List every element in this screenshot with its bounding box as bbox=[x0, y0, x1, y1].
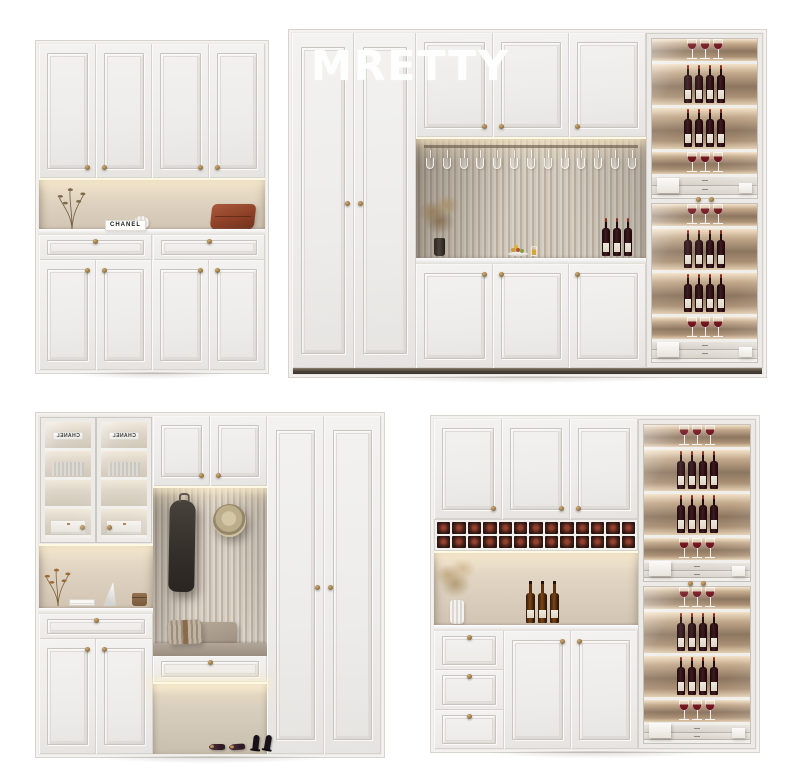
wine-rack-cell bbox=[499, 536, 512, 548]
wine-rack-cell bbox=[468, 536, 481, 548]
countertop bbox=[39, 608, 153, 614]
bench-drawer-row bbox=[153, 656, 267, 682]
glass-door-knob bbox=[696, 197, 701, 202]
wine-bottle-icon bbox=[710, 505, 718, 533]
drawer-front bbox=[434, 670, 504, 709]
wine-glass-icon bbox=[705, 538, 715, 558]
wine-bottle-icon bbox=[706, 75, 714, 103]
plate-decor bbox=[508, 252, 528, 256]
bottles-shelf bbox=[644, 450, 750, 494]
wine-rack-cell bbox=[437, 522, 450, 534]
glass-door-display-column bbox=[651, 38, 758, 199]
door-knob bbox=[499, 124, 504, 129]
tall-doors bbox=[267, 416, 381, 754]
wine-glass-icon bbox=[679, 587, 689, 607]
wine-bottle-icon bbox=[688, 461, 696, 489]
hanging-wine-glass-icon bbox=[594, 150, 602, 169]
wine-rack-cell bbox=[499, 522, 512, 534]
display-shelf: CHANEL bbox=[45, 422, 91, 451]
bench-pillow-decor bbox=[199, 622, 237, 644]
door-panel-molding bbox=[47, 648, 88, 745]
wine-bottle-icon bbox=[710, 461, 718, 489]
display-niche: CHANEL bbox=[39, 178, 265, 235]
countertop bbox=[434, 625, 638, 631]
upper-doors-row bbox=[39, 44, 265, 178]
glass-door-knob bbox=[688, 581, 693, 586]
panel-wine-bar-cabinet bbox=[430, 415, 760, 753]
door-knob bbox=[482, 124, 487, 129]
wine-glass-icon bbox=[713, 152, 723, 172]
wine-rack-cell bbox=[452, 536, 465, 548]
door-panel-molding bbox=[363, 47, 407, 354]
glasses-shelf bbox=[644, 538, 750, 563]
glass-door-knob bbox=[709, 197, 714, 202]
display-shelf bbox=[101, 480, 147, 509]
door-knob bbox=[85, 165, 90, 170]
wine-glass-icon bbox=[679, 700, 689, 720]
cabinet-door bbox=[152, 260, 209, 370]
wine-bottle-icon bbox=[695, 75, 703, 103]
door-knob bbox=[491, 506, 496, 511]
floor-shadow bbox=[439, 751, 751, 761]
glasses-shelf bbox=[644, 700, 750, 725]
wine-glass-icon bbox=[713, 204, 723, 224]
bottles-shelf bbox=[652, 273, 757, 317]
display-shelf bbox=[101, 451, 147, 480]
storage-box-decor bbox=[732, 566, 745, 576]
wine-bottle-icon bbox=[684, 240, 692, 268]
door-panel-molding bbox=[160, 269, 201, 361]
door-panel-molding bbox=[301, 47, 345, 354]
hanging-wine-glass-icon bbox=[510, 150, 518, 169]
wine-rack-cell bbox=[514, 522, 527, 534]
bench-pillow-decor bbox=[168, 619, 203, 644]
door-panel-molding bbox=[276, 430, 315, 740]
wine-rack-grid bbox=[434, 519, 638, 551]
storage-box-decor bbox=[649, 561, 671, 576]
door-panel-molding bbox=[104, 53, 145, 169]
coat-hall-niche bbox=[153, 486, 267, 656]
wine-glass-icon bbox=[705, 587, 715, 607]
cabinet-door bbox=[39, 639, 96, 754]
led-light-strip bbox=[434, 551, 638, 553]
wine-rack-cell bbox=[514, 536, 527, 548]
cabinet-door bbox=[209, 44, 266, 178]
drawers-row bbox=[39, 235, 265, 260]
drawer-front bbox=[153, 656, 267, 682]
hanging-wine-glass-icon bbox=[460, 150, 468, 169]
wine-rack-cell bbox=[529, 522, 542, 534]
door-knob bbox=[198, 165, 203, 170]
door-knob bbox=[575, 124, 580, 129]
wine-glass-icon bbox=[700, 152, 710, 172]
glasses-shelf bbox=[644, 587, 750, 612]
door-knob bbox=[345, 201, 350, 206]
door-knob bbox=[560, 639, 565, 644]
door-panel-molding bbox=[217, 269, 258, 361]
counter-wine-bottles bbox=[526, 581, 559, 623]
books-decor bbox=[69, 599, 95, 606]
hanging-wine-glass-icon bbox=[544, 150, 552, 169]
door-knob bbox=[559, 506, 564, 511]
wine-rack-cell bbox=[452, 522, 465, 534]
wine-glass-icon bbox=[692, 587, 702, 607]
hanging-wine-glass-icon bbox=[561, 150, 569, 169]
door-panel-molding bbox=[47, 53, 88, 169]
drawer-molding bbox=[442, 675, 496, 704]
wine-rack-cell bbox=[545, 522, 558, 534]
cabinet-door bbox=[267, 416, 324, 754]
stemware-rack bbox=[424, 145, 638, 171]
wine-glass-icon bbox=[679, 425, 689, 445]
wine-glass-icon bbox=[687, 204, 697, 224]
wine-bottle-icon bbox=[706, 240, 714, 268]
wine-glass-icon bbox=[713, 317, 723, 337]
cabinet-door bbox=[209, 260, 266, 370]
cabinet-door bbox=[502, 419, 570, 519]
wine-rack-cell bbox=[622, 522, 635, 534]
cabinet-door bbox=[569, 33, 646, 137]
glasses-shelf bbox=[652, 39, 757, 64]
wine-bottle-icon bbox=[717, 240, 725, 268]
led-light-strip bbox=[39, 178, 265, 180]
wine-bottle-icon bbox=[602, 228, 610, 256]
hanging-wine-glass-icon bbox=[443, 150, 451, 169]
door-knob bbox=[216, 473, 221, 478]
wine-bottle-icon bbox=[526, 593, 535, 623]
wine-rack-cell bbox=[545, 536, 558, 548]
countertop bbox=[416, 258, 646, 264]
cabinet-plinth bbox=[293, 368, 762, 374]
dried-plant-decor bbox=[53, 183, 91, 229]
storage-box-decor bbox=[649, 723, 671, 738]
wine-bottle-icon bbox=[717, 119, 725, 147]
wine-bottle-icon bbox=[624, 228, 632, 256]
straw-hat-decor bbox=[213, 504, 246, 537]
wine-glass-icon bbox=[700, 204, 710, 224]
drawer-front bbox=[434, 710, 504, 749]
wine-bottle-icon bbox=[706, 284, 714, 312]
wine-glass-icon bbox=[692, 425, 702, 445]
lower-doors-row bbox=[504, 631, 638, 749]
wine-bottle-icon bbox=[684, 284, 692, 312]
drawer-molding bbox=[442, 636, 496, 665]
door-knob bbox=[102, 268, 107, 273]
storage-box-decor bbox=[657, 178, 679, 193]
cabinet-door bbox=[96, 639, 153, 754]
cabinet-door bbox=[434, 419, 502, 519]
ribbed-vase-decor bbox=[450, 600, 464, 624]
glass-door-display-column bbox=[643, 586, 751, 744]
wine-rack-cell bbox=[483, 536, 496, 548]
cabinet-door bbox=[571, 631, 638, 749]
display-shelf bbox=[45, 509, 91, 538]
drawer-front bbox=[153, 235, 266, 260]
wine-bottle-icon bbox=[699, 505, 707, 533]
wine-bottle-icon bbox=[695, 240, 703, 268]
wine-bottle-icon bbox=[688, 667, 696, 695]
floor-shadow bbox=[44, 756, 376, 766]
storage-box-decor bbox=[657, 342, 679, 357]
led-light-strip bbox=[39, 544, 153, 546]
led-light-strip bbox=[416, 137, 646, 139]
wine-bottle-icon bbox=[677, 667, 685, 695]
cabinet-door bbox=[153, 416, 210, 486]
door-knob bbox=[482, 272, 487, 277]
hanging-wine-glass-icon bbox=[476, 150, 484, 169]
wine-glass-icon bbox=[687, 39, 697, 59]
glasses-shelf bbox=[652, 152, 757, 177]
door-panel-molding bbox=[218, 425, 259, 477]
drawer-stack bbox=[434, 631, 504, 749]
door-panel-molding bbox=[104, 648, 145, 745]
door-panel-molding bbox=[442, 428, 494, 510]
door-panel-molding bbox=[104, 269, 145, 361]
wine-rack-cell bbox=[437, 536, 450, 548]
wine-glass-icon bbox=[700, 39, 710, 59]
wine-glass-icon bbox=[705, 425, 715, 445]
wine-bottle-icon bbox=[684, 119, 692, 147]
door-panel-molding bbox=[510, 428, 562, 510]
door-knob bbox=[215, 268, 220, 273]
storage-box-decor bbox=[52, 462, 84, 476]
chanel-box-decor: CHANEL bbox=[53, 432, 84, 441]
wine-glass-icon bbox=[700, 317, 710, 337]
lower-doors-row bbox=[39, 639, 153, 754]
cabinet-door bbox=[504, 631, 571, 749]
wine-bottle-icon bbox=[688, 623, 696, 651]
storage-box-decor bbox=[739, 183, 752, 193]
drawer-knob bbox=[467, 635, 472, 640]
wine-bottle-icon bbox=[695, 119, 703, 147]
chanel-sign: CHANEL bbox=[105, 220, 146, 231]
display-shelf bbox=[101, 509, 147, 538]
product-image-collage: CHANEL bbox=[0, 0, 800, 778]
drawer-front bbox=[39, 614, 153, 639]
wine-rack-cell bbox=[560, 536, 573, 548]
heel-shoe-decor bbox=[252, 735, 260, 751]
door-panel-molding bbox=[217, 53, 258, 169]
wine-bottle-icon bbox=[538, 593, 547, 623]
drawer-row bbox=[39, 614, 153, 639]
door-knob bbox=[358, 201, 363, 206]
display-shelf bbox=[45, 451, 91, 480]
door-panel-molding bbox=[47, 269, 88, 361]
hanging-wine-glass-icon bbox=[577, 150, 585, 169]
cabinet-door bbox=[570, 419, 638, 519]
door-panel-molding bbox=[577, 273, 638, 359]
under-bench-space bbox=[153, 682, 267, 754]
wine-bottle-icon bbox=[688, 505, 696, 533]
glasses-shelf bbox=[652, 317, 757, 342]
wine-glass-icon bbox=[687, 317, 697, 337]
door-knob bbox=[328, 585, 333, 590]
door-panel-molding bbox=[161, 425, 202, 477]
sculpture-decor bbox=[103, 582, 116, 606]
glass-door-display-column bbox=[651, 203, 758, 364]
cabinet-door bbox=[96, 260, 153, 370]
door-knob bbox=[576, 506, 581, 511]
wine-glass-icon bbox=[705, 700, 715, 720]
chanel-box-decor: CHANEL bbox=[109, 432, 140, 441]
wine-bar-niche bbox=[416, 137, 646, 264]
bottles-shelf bbox=[644, 656, 750, 700]
wine-bottle-icon bbox=[699, 667, 707, 695]
cabinet-door bbox=[152, 44, 209, 178]
drawer-knob bbox=[207, 239, 212, 244]
wine-bottle-icon bbox=[550, 593, 559, 623]
display-niche bbox=[39, 544, 153, 614]
drawer-knob bbox=[208, 660, 213, 665]
wine-glass-icon bbox=[692, 538, 702, 558]
door-knob bbox=[215, 165, 220, 170]
wine-display-cabinet bbox=[646, 33, 763, 368]
door-panel-molding bbox=[579, 640, 630, 740]
wine-glass-icon bbox=[692, 700, 702, 720]
wine-bottle-icon bbox=[677, 461, 685, 489]
display-column-section: CHANEL CHANEL bbox=[39, 416, 153, 754]
door-knob bbox=[80, 525, 85, 530]
hanging-wine-glass-icon bbox=[628, 150, 636, 169]
door-knob bbox=[577, 639, 582, 644]
door-knob bbox=[102, 647, 107, 652]
bag-decor bbox=[132, 593, 147, 606]
bottles-shelf bbox=[644, 494, 750, 538]
bar-section bbox=[434, 419, 638, 749]
door-knob bbox=[315, 585, 320, 590]
panel-entry-cabinet: CHANEL bbox=[35, 40, 269, 374]
wine-bottle-icon bbox=[695, 284, 703, 312]
bar-counter-niche bbox=[434, 551, 638, 631]
wine-bottle-icon bbox=[717, 284, 725, 312]
wine-bottle-icon bbox=[677, 623, 685, 651]
wine-rack-cell bbox=[576, 522, 589, 534]
wine-bottle-icon bbox=[613, 228, 621, 256]
bottles-shelf bbox=[652, 229, 757, 273]
wine-bottle-icon bbox=[677, 505, 685, 533]
leather-pillow-decor bbox=[210, 204, 257, 230]
storage-box-decor bbox=[108, 462, 140, 476]
counter-wine-bottles bbox=[602, 217, 632, 256]
led-light-strip bbox=[153, 682, 267, 684]
glass-display-cabinet: CHANEL CHANEL bbox=[39, 416, 153, 544]
wine-bottle-icon bbox=[699, 623, 707, 651]
wine-rack-cell bbox=[622, 536, 635, 548]
wine-rack-cell bbox=[606, 536, 619, 548]
wine-bottle-icon bbox=[699, 461, 707, 489]
floor-shadow bbox=[297, 376, 758, 386]
glass-door-knob bbox=[701, 581, 706, 586]
brand-watermark: MRETTY bbox=[311, 42, 510, 90]
wine-rack-cell bbox=[560, 522, 573, 534]
door-knob bbox=[499, 272, 504, 277]
wine-rack-row bbox=[437, 522, 635, 534]
countertop bbox=[39, 229, 265, 235]
door-knob bbox=[102, 165, 107, 170]
upper-doors-row bbox=[153, 416, 267, 486]
wine-bottle-icon bbox=[717, 75, 725, 103]
lower-doors-row bbox=[39, 260, 265, 370]
glass-door-display-column bbox=[643, 424, 751, 582]
drawer-knob bbox=[467, 714, 472, 719]
dark-vase-decor bbox=[434, 238, 445, 256]
cabinet-door bbox=[39, 44, 96, 178]
wine-glass-icon bbox=[679, 538, 689, 558]
wine-rack-cell bbox=[468, 522, 481, 534]
storage-box-decor bbox=[732, 728, 745, 738]
wine-rack-cell bbox=[606, 522, 619, 534]
wine-bottle-icon bbox=[684, 75, 692, 103]
door-knob bbox=[198, 268, 203, 273]
upper-doors-row bbox=[434, 419, 638, 519]
door-knob bbox=[85, 268, 90, 273]
hanging-wine-glass-icon bbox=[611, 150, 619, 169]
wine-rack-cell bbox=[529, 536, 542, 548]
hanging-wine-glass-icon bbox=[527, 150, 535, 169]
wine-glass-icon bbox=[687, 152, 697, 172]
door-panel-molding bbox=[577, 42, 638, 128]
panel-mudroom-cabinet: CHANEL CHANEL bbox=[35, 412, 385, 758]
wine-rack-cell bbox=[483, 522, 496, 534]
led-light-strip bbox=[153, 486, 267, 488]
display-shelf: CHANEL bbox=[101, 422, 147, 451]
cabinet-door bbox=[324, 416, 381, 754]
bottles-shelf bbox=[652, 108, 757, 152]
flat-shoe-decor bbox=[209, 744, 225, 750]
door-knob bbox=[107, 525, 112, 530]
wine-rack-cell bbox=[591, 522, 604, 534]
cabinet-door bbox=[416, 264, 493, 368]
door-knob bbox=[199, 473, 204, 478]
wine-rack-cell bbox=[591, 536, 604, 548]
glass-door: CHANEL bbox=[41, 418, 95, 542]
door-panel-molding bbox=[501, 273, 562, 359]
wine-display-cabinet bbox=[638, 419, 756, 749]
flat-shoe-decor bbox=[229, 743, 245, 750]
drawer-knob bbox=[94, 618, 99, 623]
bench-hall-section bbox=[153, 416, 267, 754]
bottles-shelf bbox=[644, 612, 750, 656]
glass-door: CHANEL bbox=[97, 418, 151, 542]
storage-box-decor bbox=[739, 347, 752, 357]
cabinet-door bbox=[569, 264, 646, 368]
door-panel-molding bbox=[424, 273, 485, 359]
glasses-shelf bbox=[652, 204, 757, 229]
door-panel-molding bbox=[160, 53, 201, 169]
cabinet-door bbox=[493, 264, 570, 368]
wine-rack-cell bbox=[576, 536, 589, 548]
door-knob bbox=[85, 647, 90, 652]
drink-glass-decor bbox=[531, 246, 537, 256]
cabinet-door bbox=[39, 260, 96, 370]
wine-bottle-icon bbox=[710, 623, 718, 651]
wine-rack-row bbox=[437, 536, 635, 548]
cabinet-door bbox=[96, 44, 153, 178]
hanging-coat-decor bbox=[168, 500, 196, 592]
tall-wardrobe-section bbox=[267, 416, 381, 754]
drawer-front bbox=[39, 235, 152, 260]
bottles-shelf bbox=[652, 64, 757, 108]
wine-bottle-icon bbox=[706, 119, 714, 147]
wine-glass-icon bbox=[713, 39, 723, 59]
bench-cushion bbox=[153, 643, 267, 656]
lower-doors-row bbox=[416, 264, 646, 368]
display-shelf bbox=[45, 480, 91, 509]
cabinet-door bbox=[210, 416, 267, 486]
wine-bottle-icon bbox=[710, 667, 718, 695]
door-panel-molding bbox=[512, 640, 563, 740]
drawer-molding bbox=[442, 715, 496, 744]
